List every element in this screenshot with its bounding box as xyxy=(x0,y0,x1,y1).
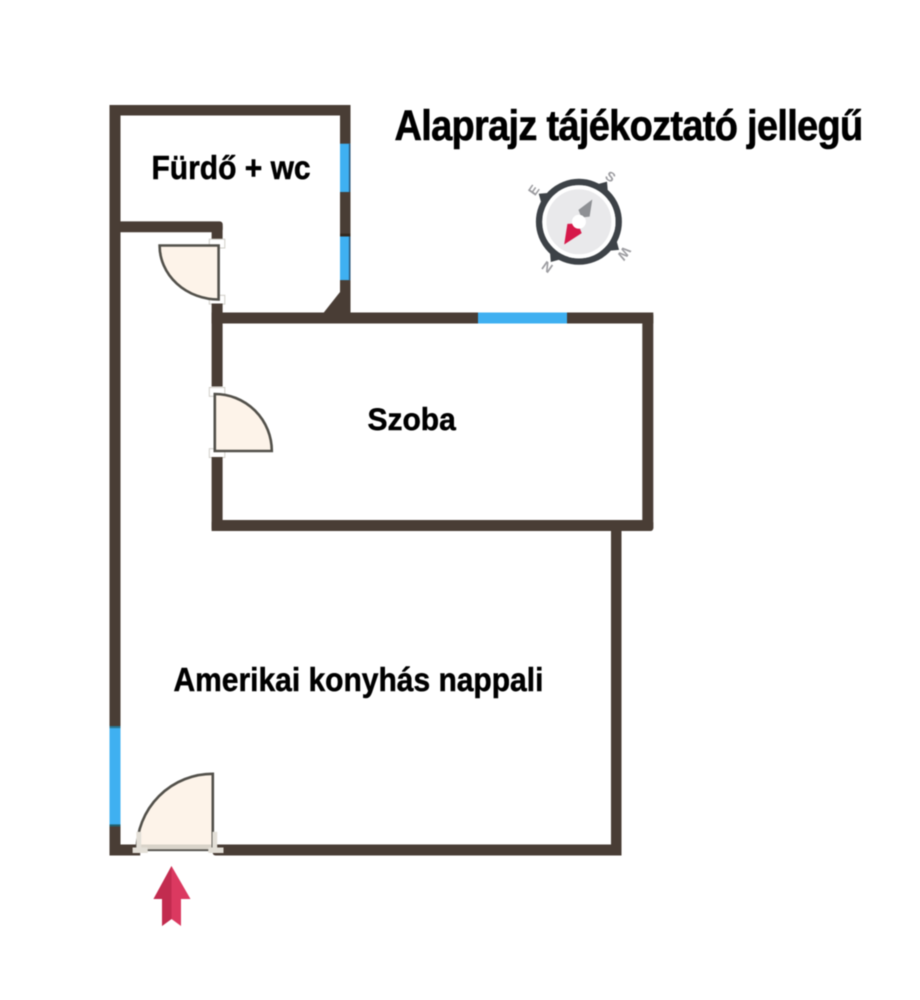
svg-text:Fürdő + wc: Fürdő + wc xyxy=(152,149,311,187)
svg-text:Amerikai konyhás nappali: Amerikai konyhás nappali xyxy=(174,661,544,699)
svg-text:Szoba: Szoba xyxy=(368,401,457,437)
svg-text:Alaprajz tájékoztató jellegű: Alaprajz tájékoztató jellegű xyxy=(395,101,863,150)
